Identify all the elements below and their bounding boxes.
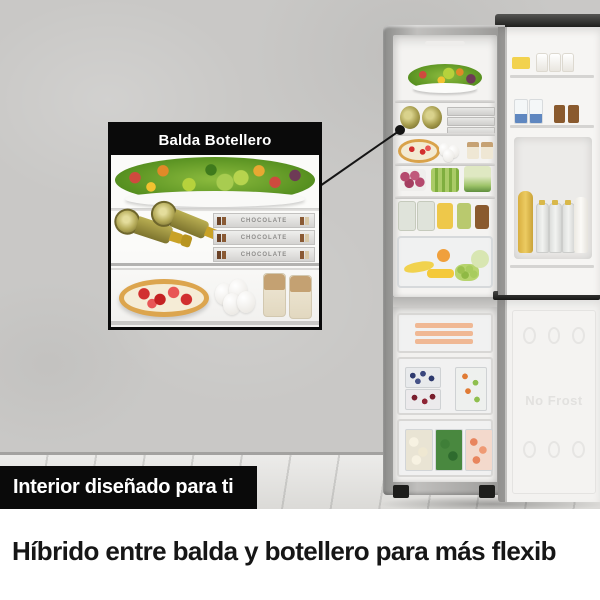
shrimp-pack bbox=[465, 429, 493, 471]
milk-bottle bbox=[574, 197, 588, 253]
shelf bbox=[395, 100, 495, 103]
juice-carton bbox=[514, 99, 528, 124]
glass-jar bbox=[417, 201, 435, 231]
salad-dish bbox=[125, 191, 305, 207]
fridge-foot bbox=[393, 485, 409, 498]
caption-text: Interior diseñado para ti bbox=[13, 476, 233, 499]
chocolate-box-label: CHOCOLATE bbox=[241, 235, 288, 241]
freezer-door-panel: No Frost bbox=[512, 310, 596, 494]
caption-bar: Interior diseñado para ti bbox=[0, 466, 257, 509]
freezer-door-open: No Frost bbox=[498, 300, 600, 502]
wire-rack bbox=[111, 268, 319, 270]
ice-icon bbox=[572, 441, 585, 458]
butter bbox=[512, 57, 530, 69]
ice-icon bbox=[572, 327, 585, 344]
mixed-vegetables-box bbox=[455, 367, 487, 411]
interior-lamp bbox=[425, 41, 465, 46]
door-shelf-rail bbox=[510, 125, 594, 128]
wire-rack bbox=[111, 263, 319, 266]
salad-bowl-dish bbox=[413, 83, 477, 93]
freezer-drawer bbox=[397, 419, 493, 477]
open-door-top-edge bbox=[495, 14, 600, 27]
fridge-foot bbox=[479, 485, 495, 498]
feature-callout-box: Balda Botellero CHOCOLATE bbox=[108, 122, 322, 330]
chocolate-box-label: CHOCOLATE bbox=[241, 252, 288, 258]
blueberry-box bbox=[405, 367, 441, 388]
fish-icon bbox=[523, 327, 536, 344]
corn bbox=[427, 269, 454, 278]
chocolate-box bbox=[447, 107, 495, 116]
chocolate-box-label: CHOCOLATE bbox=[241, 218, 288, 224]
cream-jar bbox=[263, 273, 286, 317]
water-bottle bbox=[536, 203, 549, 253]
strawberry-tart bbox=[398, 139, 440, 163]
fridge-door-open bbox=[498, 27, 600, 295]
spice-jar bbox=[568, 105, 579, 123]
egg bbox=[443, 149, 454, 162]
spice-jar bbox=[554, 105, 565, 123]
chocolate-box bbox=[447, 117, 495, 126]
embossed-food-icons bbox=[523, 441, 585, 458]
crisper-drawer bbox=[397, 236, 493, 288]
pickle-jar bbox=[457, 203, 471, 229]
shelf bbox=[395, 196, 495, 199]
chocolate-pieces bbox=[300, 217, 311, 225]
no-frost-embossing: No Frost bbox=[513, 393, 595, 408]
headline-band: Híbrido entre balda y botellero para más… bbox=[0, 509, 600, 600]
water-bottle bbox=[549, 203, 562, 253]
meat-icon bbox=[548, 441, 561, 458]
fridge-compartment bbox=[393, 35, 497, 297]
cream-jar bbox=[481, 142, 493, 159]
chocolate-pieces bbox=[300, 251, 311, 259]
fish-icon bbox=[523, 441, 536, 458]
juice-carton bbox=[529, 99, 543, 124]
cherry-box bbox=[405, 389, 441, 410]
compartment-divider bbox=[393, 297, 497, 307]
chocolate-box: CHOCOLATE bbox=[213, 230, 315, 245]
freezer-drawer bbox=[397, 357, 493, 415]
spinach-pack bbox=[435, 429, 463, 471]
frozen-fish-pack bbox=[415, 339, 473, 344]
glass-jar bbox=[398, 201, 416, 231]
freezer-compartment bbox=[393, 307, 497, 482]
freezer-drawer bbox=[397, 313, 493, 353]
shelf bbox=[395, 133, 495, 136]
chocolate-pieces bbox=[217, 234, 228, 242]
callout-photo: CHOCOLATE CHOCOLATE CHOCOLATE bbox=[111, 155, 319, 327]
meat-icon bbox=[548, 327, 561, 344]
door-shelf-rail bbox=[510, 265, 594, 268]
chocolate-box: CHOCOLATE bbox=[213, 247, 315, 262]
egg bbox=[237, 291, 255, 313]
chocolate-pieces bbox=[300, 234, 311, 242]
oil-bottle bbox=[518, 191, 533, 253]
orange bbox=[437, 249, 450, 262]
glass-shelf-edge bbox=[111, 321, 319, 325]
wine-bottle-end bbox=[400, 106, 420, 129]
cream-jar bbox=[289, 275, 312, 319]
cauliflower-pack bbox=[405, 429, 433, 471]
radishes bbox=[398, 169, 426, 191]
headline-text: Híbrido entre balda y botellero para más… bbox=[0, 509, 600, 567]
door-shelf-rail bbox=[510, 75, 594, 78]
yogurt-jar bbox=[562, 53, 574, 72]
celery bbox=[431, 168, 459, 192]
cream-jar bbox=[467, 142, 479, 159]
yogurt-jar bbox=[549, 53, 561, 72]
wine-bottle-end bbox=[422, 106, 442, 129]
chocolate-pieces bbox=[217, 251, 228, 259]
glass-shelf bbox=[111, 208, 319, 211]
leeks bbox=[464, 166, 491, 192]
preserve-jar bbox=[475, 205, 489, 229]
frozen-fish-pack bbox=[415, 331, 473, 336]
melon bbox=[471, 250, 489, 268]
callout-title: Balda Botellero bbox=[111, 125, 319, 155]
chocolate-boxes: CHOCOLATE CHOCOLATE CHOCOLATE bbox=[213, 213, 315, 264]
embossed-food-icons bbox=[523, 327, 585, 344]
marketing-banner: No Frost Balda Botellero bbox=[0, 0, 600, 600]
strawberry-tart-closeup bbox=[119, 279, 209, 317]
chocolate-pieces bbox=[217, 217, 228, 225]
frozen-fish-pack bbox=[415, 323, 473, 328]
yogurt-jar bbox=[536, 53, 548, 72]
door-bottle-recess bbox=[514, 137, 592, 259]
chocolate-box: CHOCOLATE bbox=[213, 213, 315, 228]
refrigerator: No Frost bbox=[383, 14, 600, 506]
lemon-jar bbox=[437, 203, 453, 229]
